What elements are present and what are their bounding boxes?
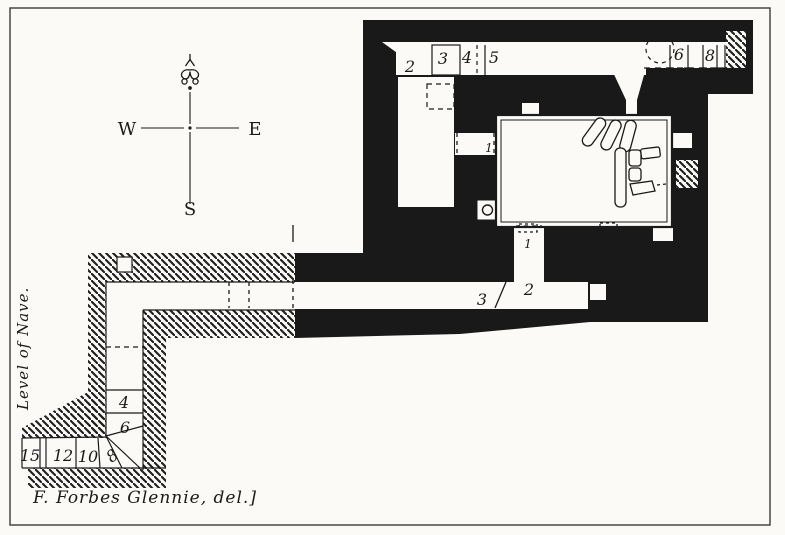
label-west-passage-1: 1 [485,141,493,155]
lower-hatched-wall [28,468,166,488]
wall-notch [117,257,132,272]
ne-hatched-wall [726,31,746,68]
compass-west-label: W [118,119,137,140]
label-south-passage-1: 1 [524,237,532,251]
label-bay-8: 8 [705,46,715,65]
engraver-caption: F. Forbes Glennie, del.] [32,488,257,508]
burial-chamber [496,115,672,227]
compass-east-label: E [248,119,261,140]
label-bay-4: 4 [461,48,472,67]
compass-south-label: S [184,199,196,220]
label-step-15: 15 [20,446,40,465]
label-step-6: 6 [120,418,130,437]
pillar-socket [477,200,498,220]
south-hatched-wall [143,310,295,470]
plan-figure: W E S [0,0,785,535]
east-hatched-wall [676,160,698,188]
compass-center [188,126,191,129]
west-room [398,77,454,207]
corridor-end-recess [590,284,606,300]
label-mid-corridor-3: 3 [477,290,487,309]
label-step-10: 10 [78,447,98,466]
label-step-4: 4 [118,393,129,412]
south-passage [514,227,544,283]
label-mid-corridor-2: 2 [523,280,534,299]
label-bay-3: 3 [438,49,448,68]
mid-corridor [295,282,588,309]
label-upper-corridor-2: 2 [404,57,415,76]
label-step-12: 12 [53,446,73,465]
label-bay-6: 6 [674,45,684,64]
label-bay-5: 5 [489,48,499,67]
north-fleur-icon [181,54,198,89]
engraved-plan-page: W E S [0,0,785,535]
level-of-nave-note: Level of Nave. [14,287,32,411]
south-east-recess [653,228,673,241]
compass-rose: W E S [118,54,262,220]
